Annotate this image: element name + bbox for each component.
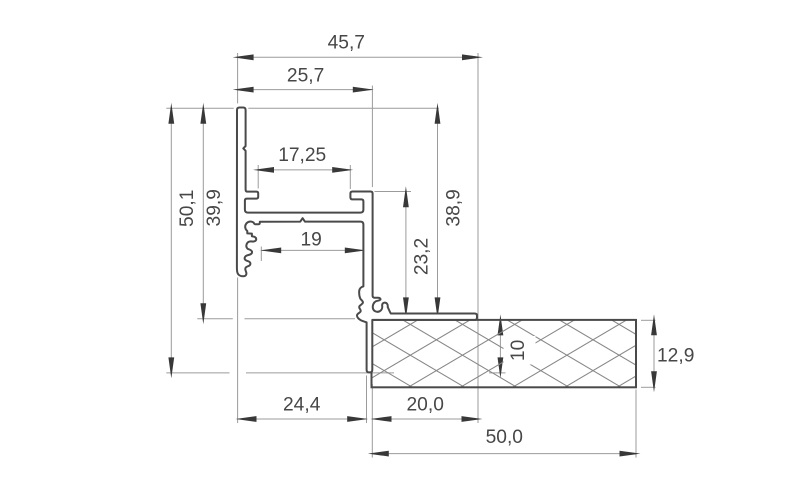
svg-text:38,9: 38,9 xyxy=(444,189,465,226)
svg-text:17,25: 17,25 xyxy=(278,145,326,166)
svg-text:24,4: 24,4 xyxy=(283,395,321,416)
svg-text:25,7: 25,7 xyxy=(287,66,324,87)
svg-text:45,7: 45,7 xyxy=(328,32,365,53)
svg-text:23,2: 23,2 xyxy=(412,238,433,275)
svg-text:12,9: 12,9 xyxy=(657,345,694,366)
svg-text:50,1: 50,1 xyxy=(177,190,198,227)
svg-text:39,9: 39,9 xyxy=(204,189,225,226)
svg-text:19: 19 xyxy=(301,230,322,251)
svg-text:10: 10 xyxy=(508,340,529,361)
svg-text:20,0: 20,0 xyxy=(407,395,444,416)
svg-text:50,0: 50,0 xyxy=(486,427,523,448)
